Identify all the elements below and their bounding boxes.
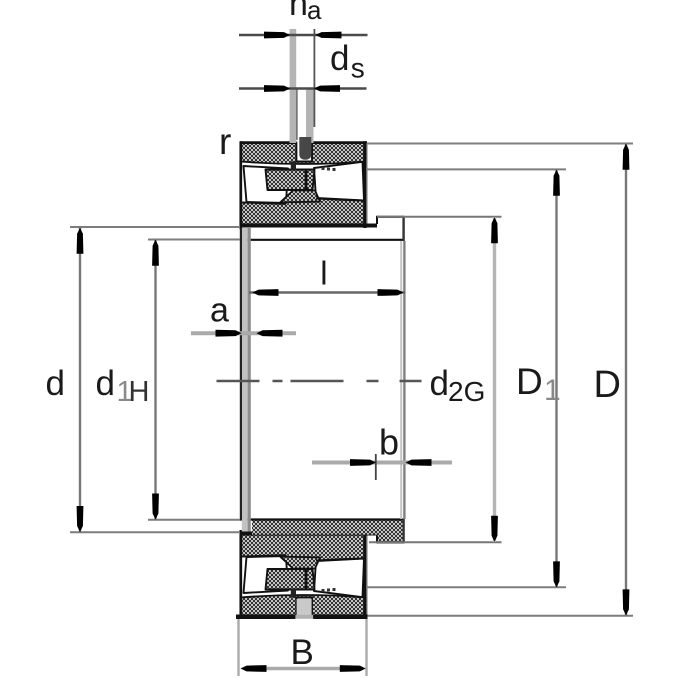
svg-text:d: d xyxy=(46,364,65,403)
svg-text:1: 1 xyxy=(544,374,561,407)
svg-text:d: d xyxy=(96,364,115,403)
svg-text:l: l xyxy=(320,255,327,292)
svg-text:r: r xyxy=(219,121,231,162)
svg-text:s: s xyxy=(351,53,365,84)
svg-text:2G: 2G xyxy=(448,376,485,407)
svg-text:d: d xyxy=(430,364,449,403)
svg-text:b: b xyxy=(379,422,399,463)
svg-text:a: a xyxy=(210,292,229,330)
svg-text:B: B xyxy=(291,633,314,672)
svg-text:n: n xyxy=(289,0,308,23)
svg-text:D: D xyxy=(594,364,621,406)
svg-text:d: d xyxy=(330,39,349,78)
svg-text:D: D xyxy=(516,361,543,402)
svg-text:H: H xyxy=(129,376,150,408)
svg-text:a: a xyxy=(307,0,322,25)
